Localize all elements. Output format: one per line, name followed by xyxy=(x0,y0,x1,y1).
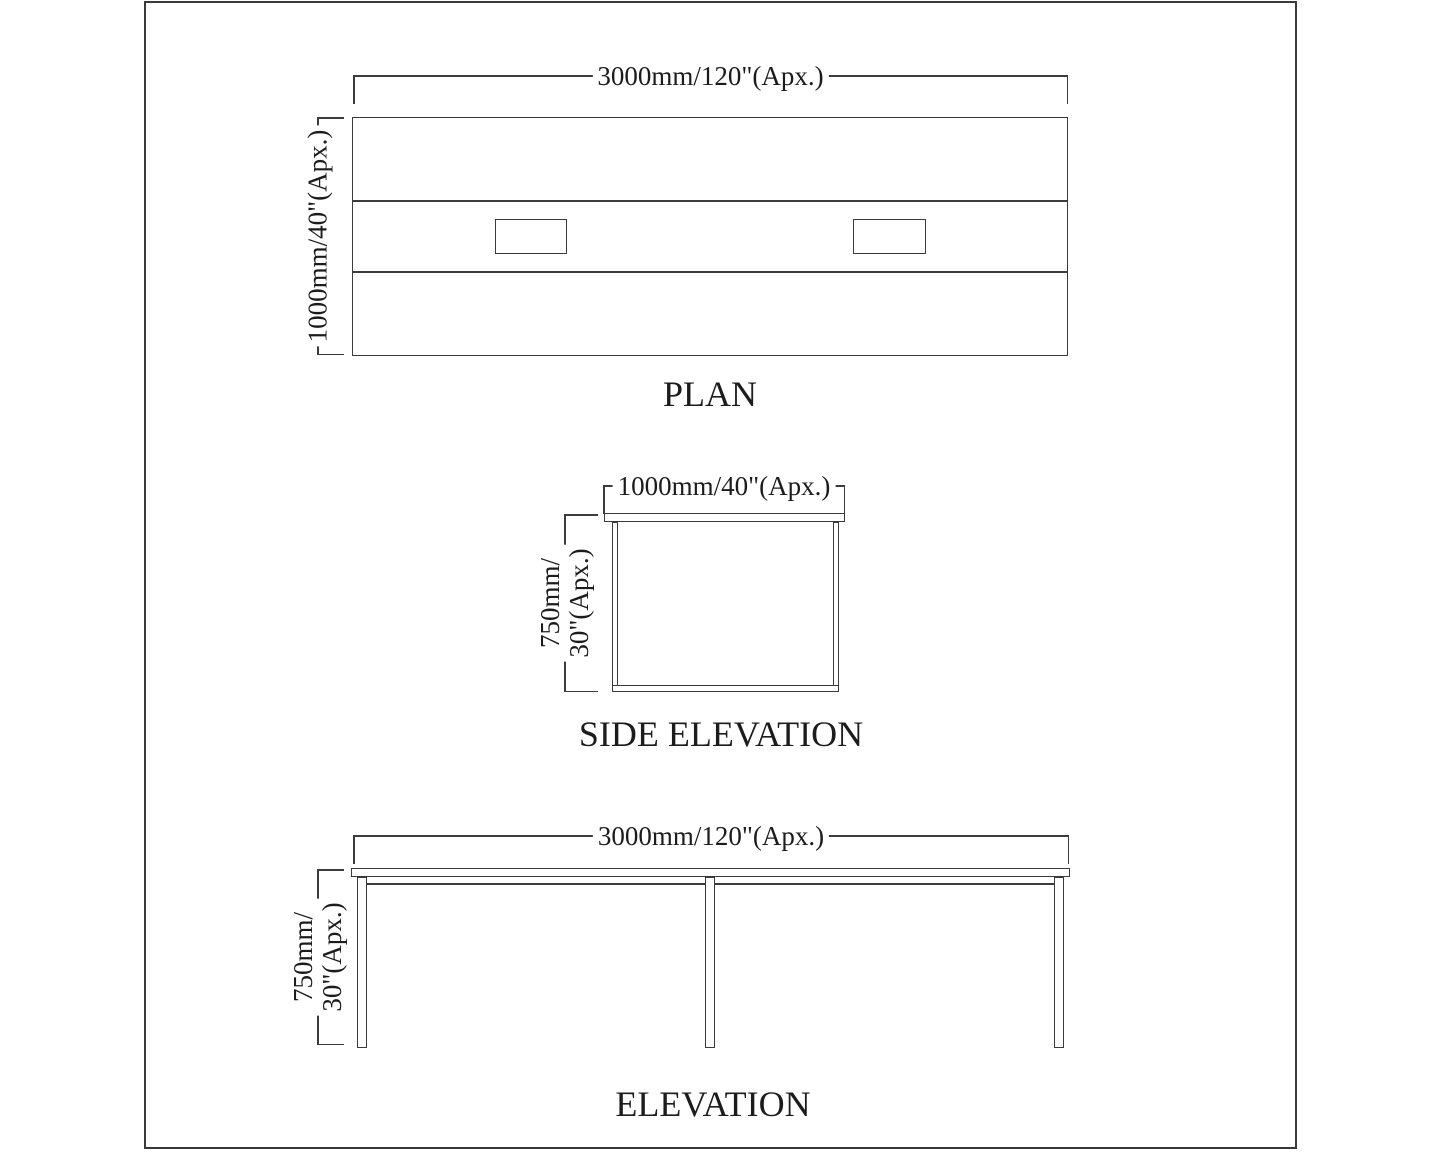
elevation-leg-left xyxy=(357,877,367,1048)
dimension-tick xyxy=(317,869,344,871)
side-elevation-title: SIDE ELEVATION xyxy=(480,716,962,752)
side-elevation-height-dimension-label: 750mm/30"(Apx.) xyxy=(534,544,596,661)
plan-panel-divider-bottom xyxy=(352,271,1068,273)
plan-width-dimension-label: 3000mm/120"(Apx.) xyxy=(592,61,828,91)
elevation-height-dimension-label: 750mm/30"(Apx.) xyxy=(287,898,349,1015)
dimension-tick xyxy=(1068,835,1070,864)
plan-title: PLAN xyxy=(352,376,1068,412)
elevation-tabletop xyxy=(351,868,1070,877)
side-elevation-leg-left xyxy=(612,522,618,692)
elevation-title: ELEVATION xyxy=(352,1086,1074,1122)
side-elevation-bottom-rail xyxy=(612,685,839,692)
side-elevation-leg-right xyxy=(833,522,839,692)
elevation-leg-right xyxy=(1054,877,1064,1048)
dimension-text-line2: 30"(Apx.) xyxy=(317,902,347,1011)
dimension-tick xyxy=(1067,75,1069,104)
plan-depth-dimension-label: 1000mm/40"(Apx.) xyxy=(302,126,335,347)
dimension-tick xyxy=(564,691,598,693)
elevation-width-dimension-label: 3000mm/120"(Apx.) xyxy=(593,821,829,851)
side-elevation-width-dimension-label: 1000mm/40"(Apx.) xyxy=(613,471,836,501)
dimension-tick xyxy=(317,117,344,119)
plan-tabletop-outline xyxy=(352,117,1068,356)
dimension-tick xyxy=(844,485,846,514)
plan-leg-right-outline xyxy=(853,219,926,254)
drawing-sheet: 3000mm/120"(Apx.) 1000mm/40"(Apx.) PLAN … xyxy=(0,0,1445,1156)
side-elevation-tabletop xyxy=(604,513,845,522)
dimension-text-line2: 30"(Apx.) xyxy=(564,548,594,657)
dimension-text-line1: 750mm/ xyxy=(288,912,318,1002)
plan-panel-divider-top xyxy=(352,200,1068,202)
dimension-tick xyxy=(317,1044,344,1046)
dimension-text-line1: 750mm/ xyxy=(535,558,565,648)
dimension-tick xyxy=(353,835,355,864)
dimension-tick xyxy=(603,485,605,514)
dimension-tick xyxy=(564,514,598,516)
dimension-tick xyxy=(353,75,355,104)
elevation-leg-middle xyxy=(705,877,715,1048)
dimension-tick xyxy=(317,354,344,356)
plan-leg-left-outline xyxy=(495,219,567,254)
